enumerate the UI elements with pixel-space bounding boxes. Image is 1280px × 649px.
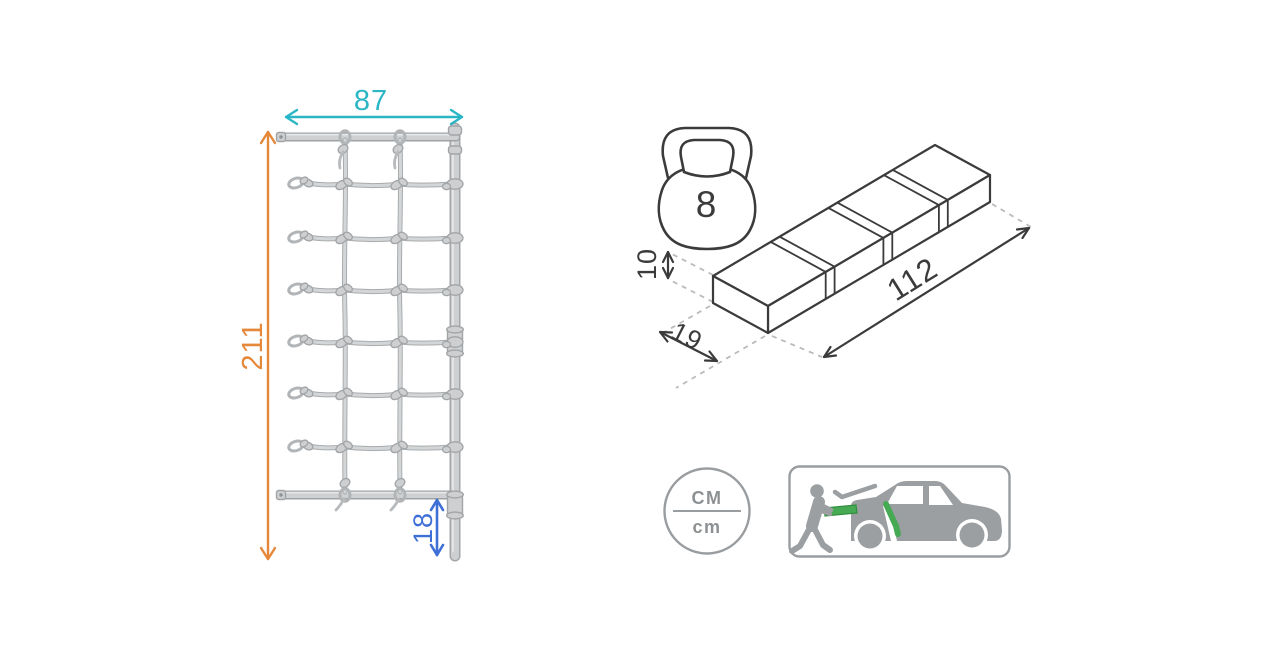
- rope-loop: [287, 282, 314, 296]
- kettlebell-handle-hole: [681, 140, 734, 177]
- rear-wheel: [858, 524, 883, 549]
- net-height-value: 211: [237, 321, 269, 370]
- rope-loop: [287, 230, 314, 244]
- rope-loop-ends: [287, 176, 314, 453]
- rope-loop: [287, 439, 314, 453]
- rope-loop: [287, 176, 314, 190]
- net-top-bar: [277, 133, 457, 142]
- front-wheel: [960, 523, 985, 548]
- net-clearance-value: 18: [408, 512, 438, 544]
- unit-top-label: CM: [692, 488, 723, 508]
- net-width-value: 87: [354, 85, 388, 117]
- net-height-dimension: 211: [237, 132, 275, 559]
- package-depth-value: 19: [667, 316, 708, 357]
- cm-units-circle-icon: CM cm: [665, 469, 750, 554]
- person-head: [810, 484, 824, 498]
- unit-bottom-label: cm: [692, 517, 721, 537]
- diagram-svg: 87 211 18 8: [0, 0, 1280, 649]
- net-bottom-bar: [277, 491, 457, 500]
- rope-loop: [287, 386, 314, 400]
- net-width-dimension: 87: [286, 85, 462, 124]
- package-depth-dimension: 19: [660, 316, 717, 361]
- package-height-value: 10: [632, 248, 662, 280]
- package-weight-value: 8: [696, 184, 717, 225]
- car-trunk-loading-icon: [790, 467, 1010, 557]
- package-box: [713, 145, 990, 333]
- net-vertical-ropes: [344, 140, 400, 492]
- climbing-net-illustration: [277, 126, 464, 556]
- net-clearance-dimension: 18: [408, 500, 443, 555]
- rope-loop: [287, 334, 314, 348]
- net-horizontal-ropes: [309, 183, 451, 449]
- product-dimensions-diagram: 87 211 18 8: [0, 0, 1280, 649]
- package-height-dimension: 10: [632, 248, 673, 280]
- kettlebell-icon: 8: [659, 128, 755, 249]
